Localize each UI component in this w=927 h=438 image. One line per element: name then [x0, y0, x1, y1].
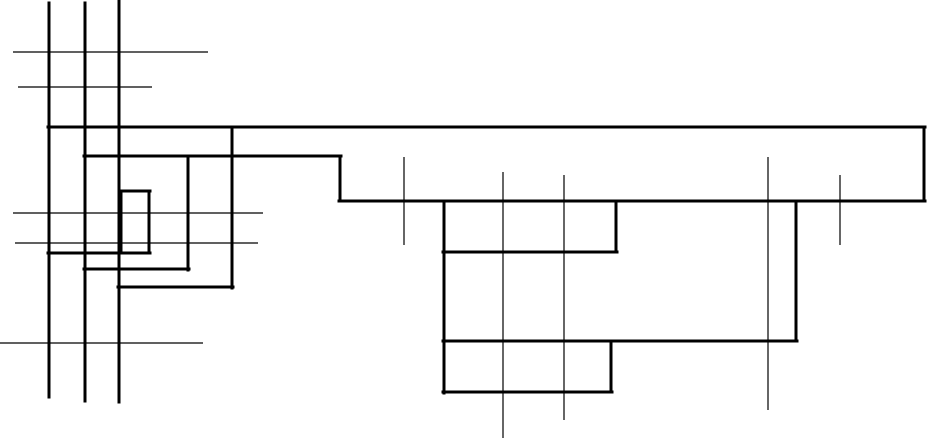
drawing-canvas: [0, 0, 927, 438]
line-diagram: [0, 0, 927, 438]
